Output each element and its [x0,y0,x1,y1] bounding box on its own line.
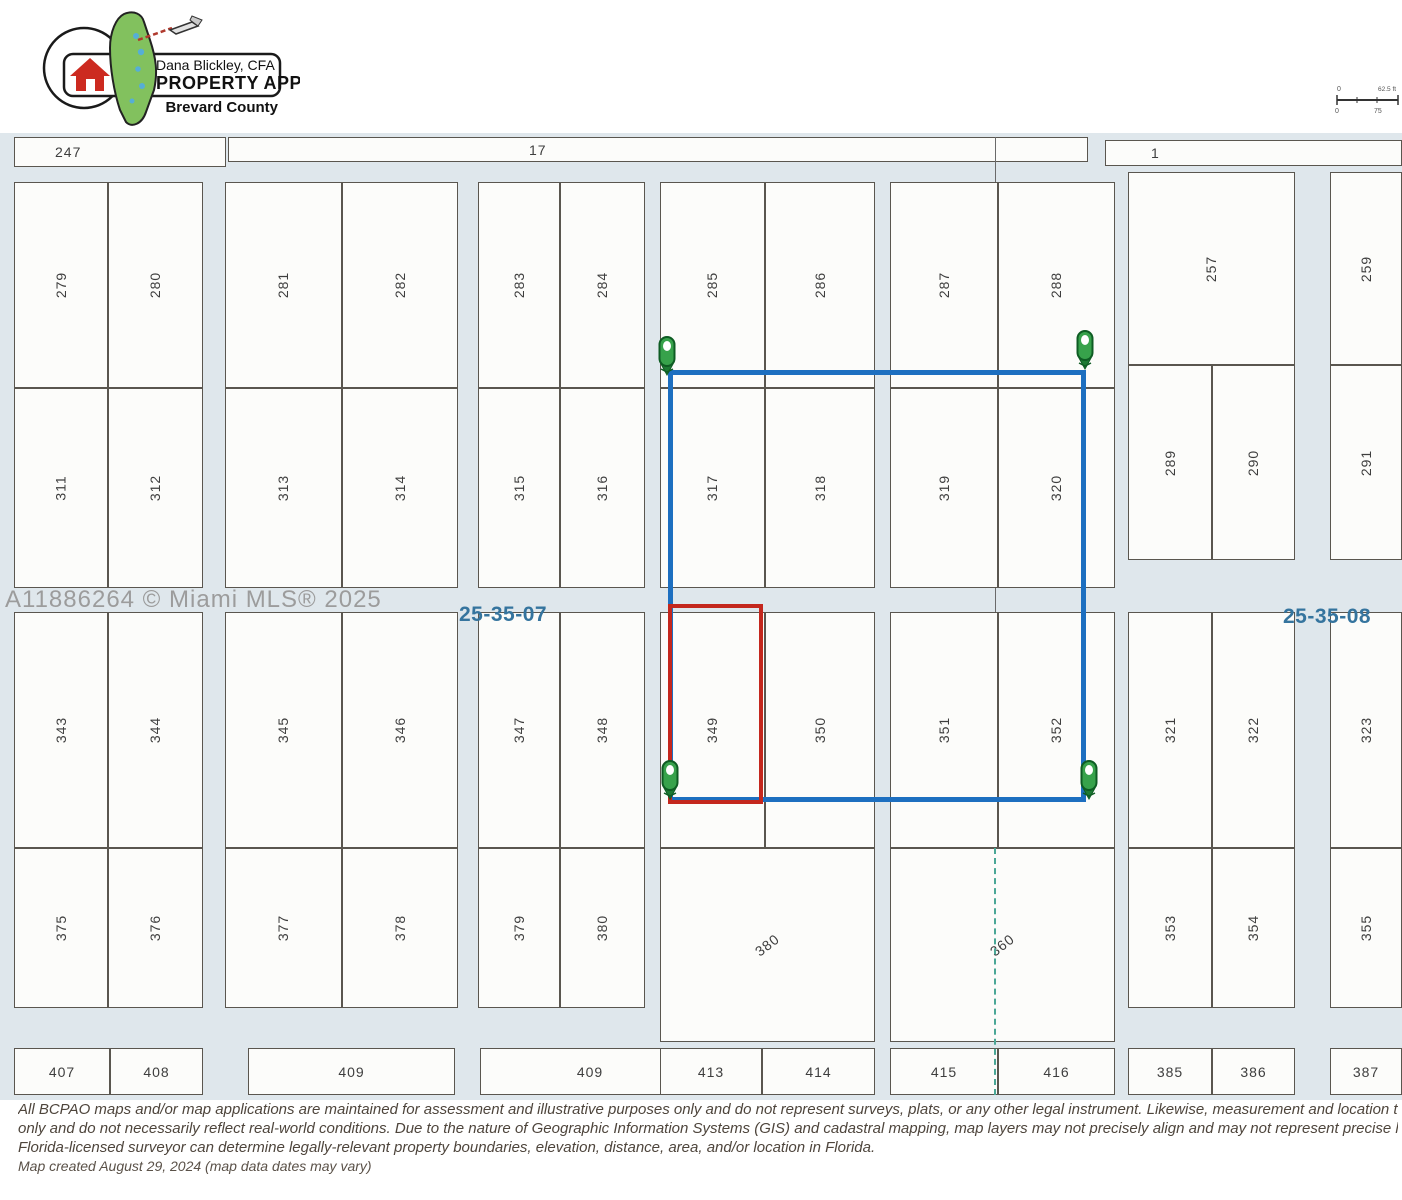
parcel-label: 289 [1162,449,1178,475]
section-label-25-35-08: 25-35-08 [1283,605,1371,629]
county-map-icon [110,12,156,124]
parcel-316: 316 [560,388,645,588]
parcel-label: 287 [936,272,952,298]
parcel-label: 360 [987,931,1018,960]
parcel-label: 316 [594,475,610,501]
parcel-323: 323 [1330,612,1402,848]
parcel-label: 409 [338,1064,364,1080]
logo-title-text: PROPERTY APPRAISER [156,73,300,93]
parcel-label: 386 [1240,1064,1266,1080]
parcel-label: 354 [1245,915,1261,941]
parcel-360: 360 [890,848,1115,1042]
scale-bottom-mid-label: 75 [1374,108,1382,114]
parcel-291: 291 [1330,365,1402,560]
mls-watermark: A11886264 © Miami MLS® 2025 [5,586,382,614]
parcel-376: 376 [108,848,203,1008]
parcel-label: 288 [1048,272,1064,298]
parcel-label: 387 [1353,1064,1379,1080]
parcel-label: 378 [392,915,408,941]
selection-corner-pin-icon [656,336,678,376]
parcel-label: 315 [511,475,527,501]
logo-county-text: Brevard County [165,99,278,116]
parcel-321: 321 [1128,612,1212,848]
parcel-label: 283 [511,272,527,298]
parcel-377: 377 [225,848,342,1008]
parcel-label: 407 [49,1064,75,1080]
parcel-label: 313 [275,475,291,501]
selection-corner-pin-icon [1078,760,1100,800]
parcel-414: 414 [762,1048,875,1095]
parcel-label: 345 [275,717,291,743]
parcel-label: 291 [1358,449,1374,475]
parcel-289: 289 [1128,365,1212,560]
parcel-284: 284 [560,182,645,388]
parcel-290: 290 [1212,365,1295,560]
parcel-label: 1 [1151,145,1160,161]
parcel-413: 413 [660,1048,762,1095]
parcel-label: 380 [594,915,610,941]
disclaimer: All BCPAO maps and/or map applications a… [18,1100,1398,1157]
parcel-label: 355 [1358,915,1374,941]
parcel-label: 348 [594,717,610,743]
parcel-407: 407 [14,1048,110,1095]
parcel-label: 408 [143,1064,169,1080]
parcel-label: 377 [275,915,291,941]
logo-graphic: Dana Blickley, CFA PROPERTY APPRAISER Br… [20,6,300,130]
parcel-314: 314 [342,388,458,588]
parcel-label: 259 [1358,255,1374,281]
parcel-380: 380 [660,848,875,1042]
parcel-label: 322 [1245,717,1261,743]
map-scale-bar: 0 62.5 ft 0 75 [1334,82,1402,119]
parcel-345: 345 [225,612,342,848]
parcel-344: 344 [108,612,203,848]
parcel-347: 347 [478,612,560,848]
parcel-247: 247 [14,137,226,167]
parcel-label: 311 [53,475,69,500]
parcel-1: 1 [1105,140,1402,166]
highlighted-parcel-349-outline [668,604,763,804]
parcel-280: 280 [108,182,203,388]
parcel-354: 354 [1212,848,1295,1008]
disclaimer-line-3: Florida-licensed surveyor can determine … [18,1138,1398,1157]
parcel-409: 409 [248,1048,455,1095]
section-label-25-35-07: 25-35-07 [459,603,547,627]
parcel-380: 380 [560,848,645,1008]
parcel-label: 321 [1162,717,1178,743]
property-appraiser-map-page: Dana Blickley, CFA PROPERTY APPRAISER Br… [0,0,1402,1200]
map-created-note: Map created August 29, 2024 (map data da… [18,1158,372,1174]
parcel-259: 259 [1330,172,1402,365]
parcel-348: 348 [560,612,645,848]
parcel-379: 379 [478,848,560,1008]
parcel-label: 347 [511,717,527,743]
parcel-label: 415 [931,1064,957,1080]
brevard-property-appraiser-logo: Dana Blickley, CFA PROPERTY APPRAISER Br… [20,6,300,135]
parcel-label: 284 [594,272,610,298]
parcel-label: 379 [511,915,527,941]
parcel-label: 375 [53,915,69,941]
parcel-label: 312 [147,475,163,501]
parcel-315: 315 [478,388,560,588]
disclaimer-line-2: only and do not necessarily reflect real… [18,1119,1398,1138]
parcel-label: 385 [1157,1064,1183,1080]
parcel-label: 380 [752,931,783,960]
parcel-label: 346 [392,717,408,743]
parcel-312: 312 [108,388,203,588]
parcel-288: 288 [998,182,1115,388]
parcel-355: 355 [1330,848,1402,1008]
parcel-286: 286 [765,182,875,388]
selection-corner-pin-icon [1074,330,1096,370]
parcel-label: 290 [1245,449,1261,475]
parcel-label: 280 [147,272,163,298]
parcel-label: 286 [812,272,828,298]
parcel-label: 17 [529,142,547,158]
parcel-label: 343 [53,717,69,743]
scale-bottom-left-label: 0 [1335,108,1339,114]
parcel-257: 257 [1128,172,1295,365]
parcel-label: 376 [147,915,163,941]
parcel-label: 323 [1358,717,1374,743]
parcel-label: 314 [392,475,408,501]
parcel-415: 415 [890,1048,998,1095]
parcel-label: 416 [1043,1064,1069,1080]
parcel-label: 281 [275,272,291,298]
parcel-label: 344 [147,717,163,743]
parcel-375: 375 [14,848,108,1008]
parcel-label: 279 [53,272,69,298]
parcel-386: 386 [1212,1048,1295,1095]
parcel-416: 416 [998,1048,1115,1095]
section-line-dashed [994,848,996,1095]
parcel-311: 311 [14,388,108,588]
logo-name-text: Dana Blickley, CFA [156,57,275,73]
parcel-17: 17 [228,137,1088,162]
parcel-283: 283 [478,182,560,388]
parcel-label: 413 [698,1064,724,1080]
parcel-313: 313 [225,388,342,588]
parcel-279: 279 [14,182,108,388]
parcel-387: 387 [1330,1048,1402,1095]
parcel-346: 346 [342,612,458,848]
parcel-378: 378 [342,848,458,1008]
section-line-top [995,137,996,182]
parcel-label: 257 [1203,255,1219,281]
parcel-label: 353 [1162,915,1178,941]
parcel-label: 414 [805,1064,831,1080]
parcel-label: 409 [577,1064,603,1080]
parcel-343: 343 [14,612,108,848]
scale-right-label: 62.5 ft [1378,86,1396,93]
parcel-282: 282 [342,182,458,388]
parcel-label: 247 [55,144,81,160]
parcel-label: 282 [392,272,408,298]
scale-left-label: 0 [1337,86,1341,93]
parcel-408: 408 [110,1048,203,1095]
selection-corner-pin-icon [659,760,681,800]
parcel-287: 287 [890,182,998,388]
parcel-385: 385 [1128,1048,1212,1095]
parcel-281: 281 [225,182,342,388]
parcel-label: 285 [704,272,720,298]
disclaimer-line-1: All BCPAO maps and/or map applications a… [18,1100,1398,1119]
parcel-353: 353 [1128,848,1212,1008]
parcel-322: 322 [1212,612,1295,848]
space-shuttle-icon [138,16,202,40]
